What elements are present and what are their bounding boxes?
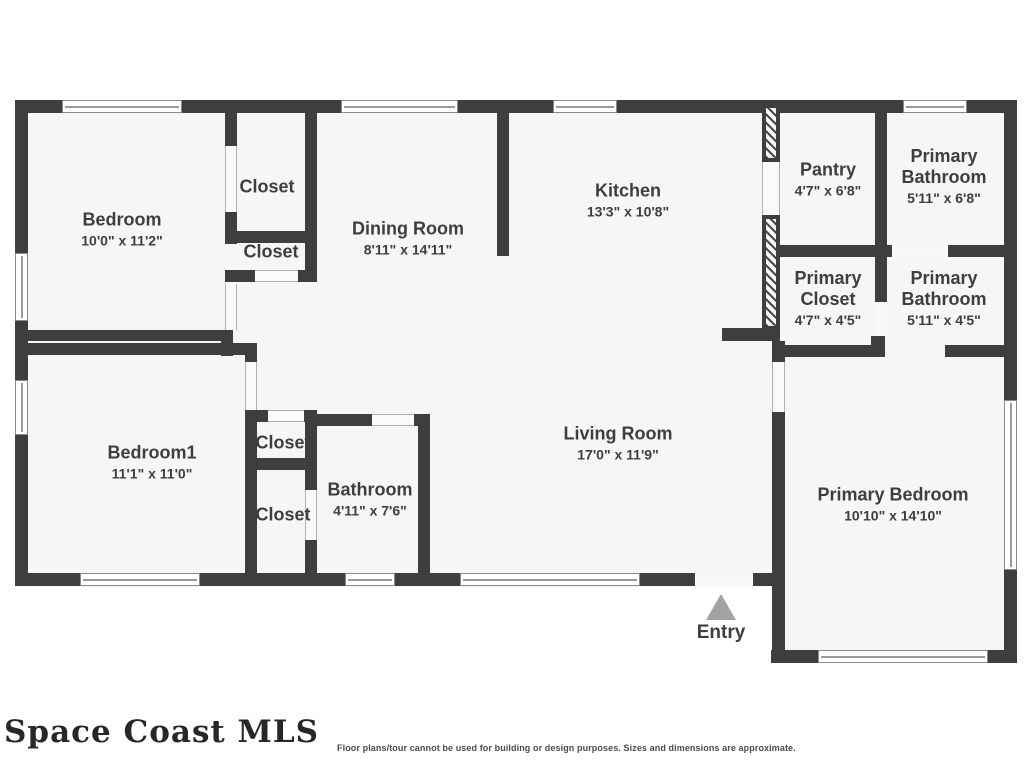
wall [305,100,317,282]
door-opening [762,162,780,215]
door-opening [225,146,237,212]
room-label-bedroom1: Bedroom1 11'1" x 11'0" [107,442,196,481]
wall [945,345,1004,357]
room-label-primary-bathroom-lower: Primary Bathroom 5'11" x 4'5" [885,268,1003,328]
room-dims: 5'11" x 4'5" [885,312,1003,328]
room-name: Dining Room [352,218,464,239]
window [80,573,200,586]
door-opening [372,414,414,426]
room-name: Closet [255,505,310,526]
room-name: Primary Bedroom [783,484,1003,505]
window [460,573,640,586]
room-name: Kitchen [587,180,669,201]
window [62,100,182,113]
room-name: Closet [239,177,294,198]
room-name: Primary Bathroom [885,146,1003,188]
room-dims: 8'11" x 14'11" [352,241,464,257]
room-name: Bedroom1 [107,442,196,463]
room-label-closet-d: Closet [255,505,310,526]
room-dims: 4'11" x 7'6" [328,502,413,518]
wall [15,343,257,355]
room-label-closet-c: Closet [255,433,310,454]
door-opening [772,362,785,412]
room-label-pantry: Pantry 4'7" x 6'8" [795,159,862,198]
room-dims: 5'11" x 6'8" [885,190,1003,206]
entry-opening [695,573,753,586]
room-name: Closet [255,433,310,454]
room-name: Bathroom [328,479,413,500]
wall [15,330,233,341]
room-label-primary-bathroom-upper: Primary Bathroom 5'11" x 6'8" [885,146,1003,206]
window [903,100,967,113]
wall [225,100,237,146]
room-name: Living Room [564,423,673,444]
entry-label: Entry [697,622,746,644]
room-dims: 17'0" x 11'9" [564,446,673,462]
door-opening [255,270,298,282]
door-opening [268,410,304,422]
door-opening [225,284,237,330]
wall [245,343,257,362]
window [15,380,28,435]
window [553,100,617,113]
room-dims: 10'10" x 14'10" [783,507,1003,523]
window [15,253,28,321]
room-dims: 4'7" x 4'5" [783,312,873,328]
room-label-bathroom: Bathroom 4'11" x 7'6" [328,479,413,518]
watermark: Space Coast MLS [4,714,319,750]
window [818,650,988,663]
disclaimer-text: Floor plans/tour cannot be used for buil… [337,743,796,753]
wall [418,414,430,573]
room-dims: 10'0" x 11'2" [81,232,162,248]
wall [772,412,785,663]
room-label-dining-room: Dining Room 8'11" x 14'11" [352,218,464,257]
wall [772,345,883,357]
room-label-bedroom: Bedroom 10'0" x 11'2" [81,209,162,248]
room-label-closet-b: Closet [243,242,298,263]
wall [497,100,509,256]
window [345,573,395,586]
room-dims: 11'1" x 11'0" [107,465,196,481]
room-name: Primary Bathroom [885,268,1003,310]
window [1004,400,1017,570]
room-name: Primary Closet [783,268,873,310]
room-name: Closet [243,242,298,263]
room-dims: 4'7" x 6'8" [795,182,862,198]
room-label-kitchen: Kitchen 13'3" x 10'8" [587,180,669,219]
room-dims: 13'3" x 10'8" [587,203,669,219]
entry-arrow-icon [706,594,736,620]
room-label-closet-a: Closet [239,177,294,198]
room-label-primary-bedroom: Primary Bedroom 10'10" x 14'10" [783,484,1003,523]
door-opening [245,362,257,410]
hatched-wall [762,104,780,162]
window [341,100,458,113]
room-name: Bedroom [81,209,162,230]
wall [1004,100,1017,663]
room-name: Pantry [795,159,862,180]
door-opening [892,245,948,257]
floor-plan: Bedroom 10'0" x 11'2" Closet Closet Dini… [0,0,1024,768]
hatched-wall [762,215,780,330]
room-label-primary-closet: Primary Closet 4'7" x 4'5" [783,268,873,328]
room-label-living-room: Living Room 17'0" x 11'9" [564,423,673,462]
